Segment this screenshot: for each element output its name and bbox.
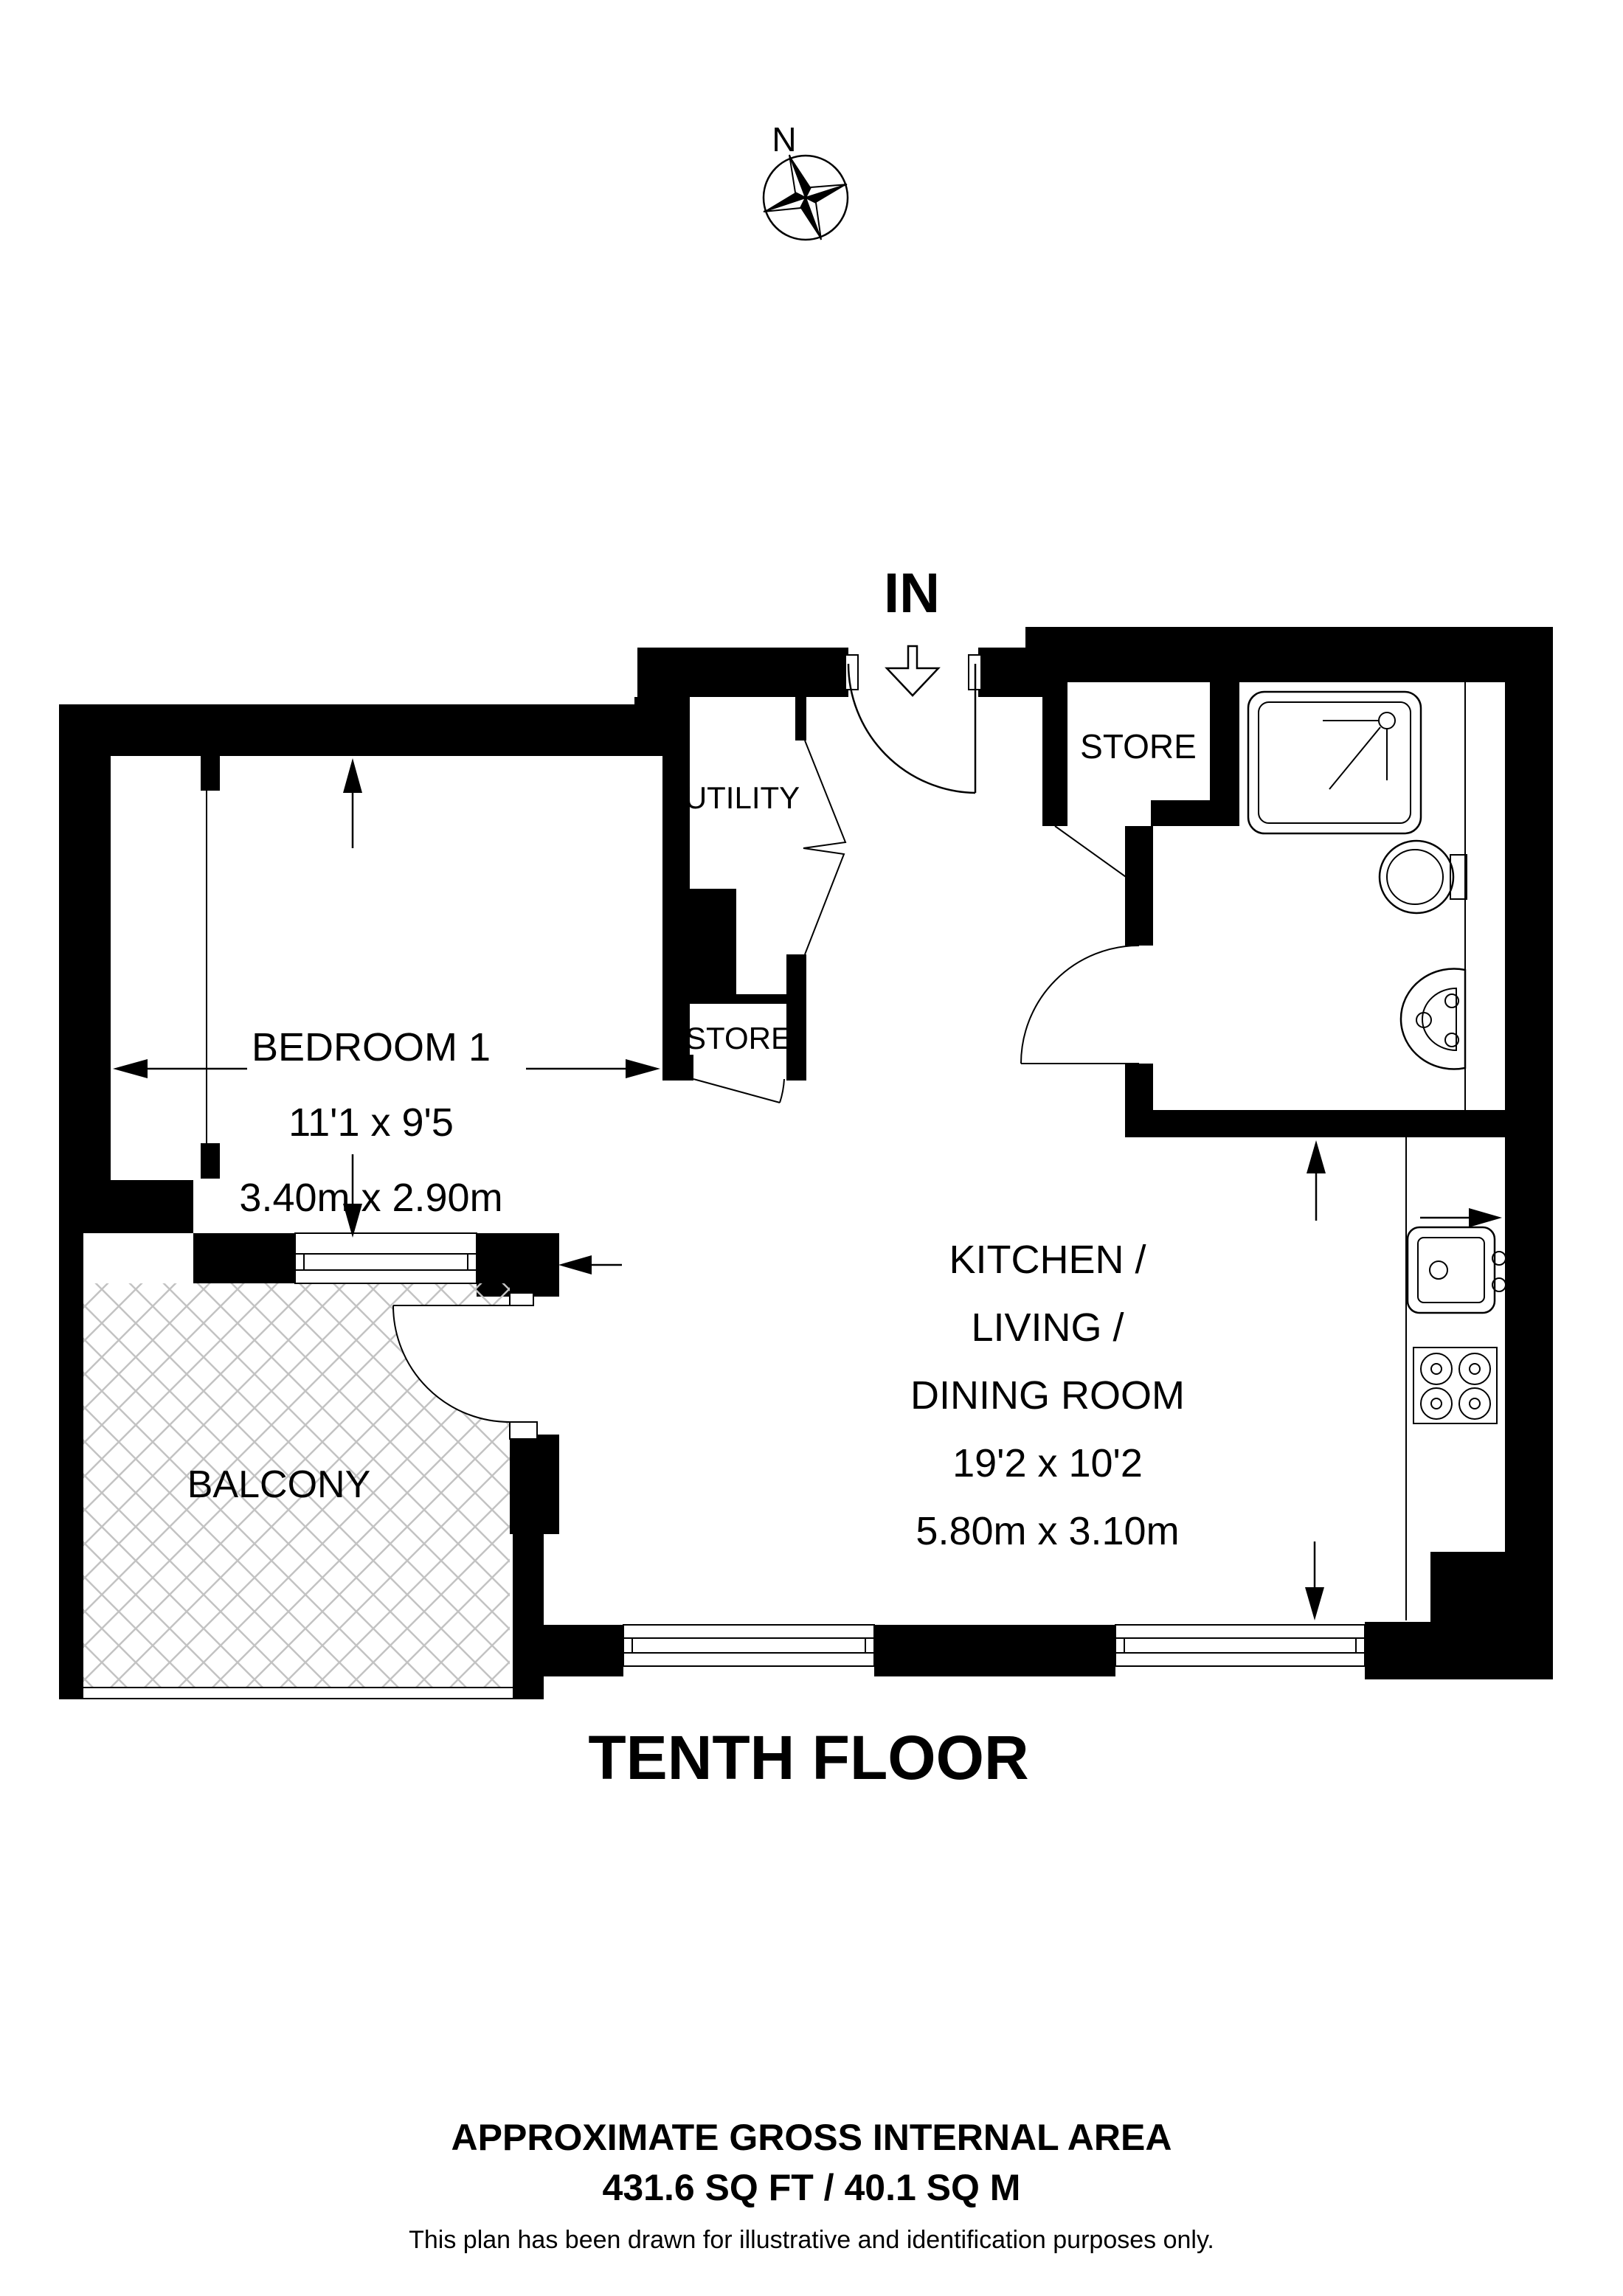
living-room-window-2 xyxy=(1115,1625,1365,1666)
bedroom-arrow-up xyxy=(343,758,362,848)
entrance-in-label: IN xyxy=(884,562,940,625)
bedroom-label: BEDROOM 1 xyxy=(252,1025,491,1069)
entrance-arrow-icon xyxy=(887,646,938,696)
balcony-railing xyxy=(83,1688,513,1699)
footer-disclaimer: This plan has been drawn for illustrativ… xyxy=(409,2226,1214,2254)
balcony-label: BALCONY xyxy=(187,1463,371,1506)
living-room-window-1 xyxy=(623,1625,874,1666)
bedroom-arrow-right xyxy=(526,1059,660,1078)
kitchen-dims-metric: 5.80m x 3.10m xyxy=(916,1509,1179,1553)
toilet-icon xyxy=(1380,841,1467,913)
living-arrow-left xyxy=(558,1255,622,1274)
bathroom-door xyxy=(1021,946,1139,1064)
store-inner-door xyxy=(693,1079,784,1103)
utility-bifold-door xyxy=(803,741,845,954)
bedroom-balcony-window xyxy=(295,1233,477,1283)
living-arrow-up xyxy=(1307,1140,1326,1221)
kitchen-label-line1: KITCHEN / xyxy=(949,1238,1146,1282)
kitchen-sink-icon xyxy=(1408,1227,1506,1313)
compass-rose: N xyxy=(764,120,848,240)
entrance-in-marker: IN xyxy=(884,562,940,696)
floorplan-page: N xyxy=(0,0,1623,2296)
compass-north-label: N xyxy=(772,120,796,159)
living-arrow-down xyxy=(1305,1541,1324,1620)
floor-title: TENTH FLOOR xyxy=(588,1723,1028,1792)
hob-icon xyxy=(1413,1348,1497,1423)
footer-area-value: 431.6 SQ FT / 40.1 SQ M xyxy=(603,2167,1021,2208)
kitchen-dims-imperial: 19'2 x 10'2 xyxy=(952,1441,1143,1485)
kitchen-label-line3: DINING ROOM xyxy=(910,1373,1185,1418)
store-inner-label: STORE xyxy=(685,1021,792,1055)
kitchen-label-line2: LIVING / xyxy=(971,1305,1124,1350)
utility-label: UTILITY xyxy=(685,780,800,815)
basin-icon xyxy=(1401,968,1465,1069)
store-entrance-label: STORE xyxy=(1080,727,1197,766)
bedroom-dims-metric: 3.40m x 2.90m xyxy=(239,1176,502,1220)
footer-area-title: APPROXIMATE GROSS INTERNAL AREA xyxy=(451,2117,1172,2158)
living-arrow-right xyxy=(1420,1208,1502,1227)
shower-icon xyxy=(1248,692,1421,833)
bedroom-arrow-left xyxy=(113,1059,247,1078)
bedroom-dims-imperial: 11'1 x 9'5 xyxy=(288,1100,454,1145)
floorplan-drawing: N xyxy=(0,0,1623,2296)
